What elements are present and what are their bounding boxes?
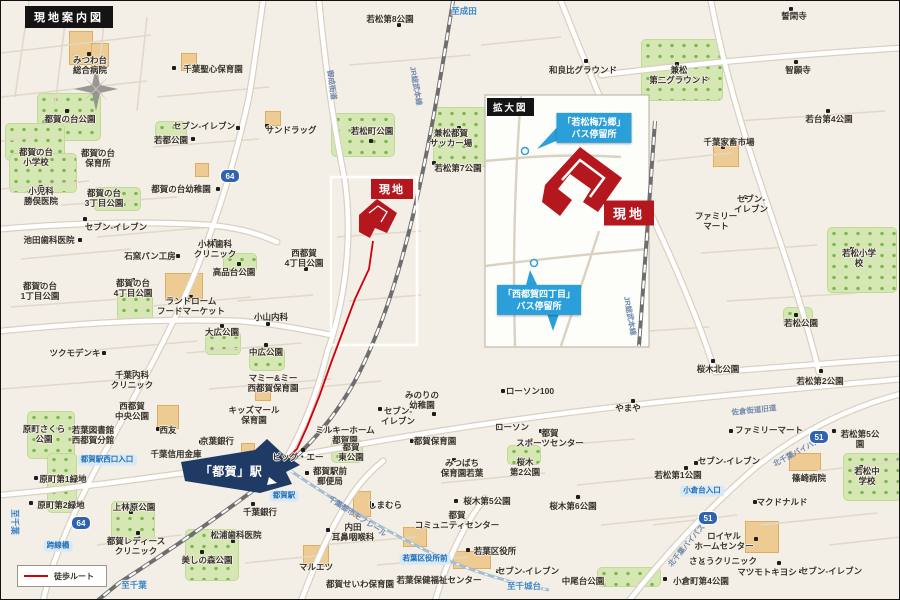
map-label: 都賀駅西口入口 (78, 455, 137, 466)
map-label: 若台第4公園 (805, 114, 852, 124)
map-label: 都賀の台 4丁目公園 (114, 278, 153, 298)
map-label: セブン-イレブン (173, 121, 235, 131)
poi-dot (794, 313, 798, 317)
route-shield: 64 (71, 516, 91, 530)
map-label: 千葉銀行 (243, 507, 277, 517)
map-label: 都賀 スポーツセンター (516, 428, 584, 448)
map-label: 高品台公園 (213, 267, 256, 277)
map-label: 若松第1公園 (654, 470, 701, 480)
map-label: セブン-イレブン (85, 222, 147, 232)
poi-dot (826, 109, 830, 113)
map-label: 小林歯科 クリニック (194, 239, 237, 259)
poi-dot (83, 217, 87, 221)
map-label: みつわ台 総合病院 (73, 55, 107, 75)
map-label: 至千葉 (121, 580, 147, 590)
map-label: 若松第7公園 (434, 163, 481, 173)
map-label: ローソン100 (506, 386, 554, 396)
map-label: マルエツ (299, 562, 333, 572)
poi-dot (711, 359, 715, 363)
map-label: 西都賀 4丁目公園 (285, 248, 324, 268)
poi-dot (754, 537, 758, 541)
poi-dot (266, 322, 270, 326)
poi-dot (236, 126, 240, 130)
map-label: 小倉台入口 (680, 486, 724, 497)
map-label: 桜木第5公園 (463, 496, 510, 506)
poi-dot (777, 561, 781, 565)
map-label: 西友 (159, 425, 176, 435)
map-label: ランドローム フードマーケット (157, 296, 225, 316)
poi-dot (136, 531, 140, 535)
map-label: 松浦歯科医院 (210, 530, 261, 540)
map-label: 桜木北公園 (697, 364, 740, 374)
map-label: セブン- イレブン (734, 194, 768, 214)
map-label: 都賀の台 3丁目公園 (85, 188, 124, 208)
map-label: セブン- イレブン (381, 406, 415, 426)
poi-dot (65, 109, 69, 113)
map-label: マツモトキヨシ (737, 567, 797, 577)
poi-dot (326, 528, 330, 532)
walk-route-line-sample (24, 575, 48, 577)
walk-route-label: 徒歩ルート (54, 571, 94, 582)
map-label: 都賀の台公園 (44, 114, 95, 124)
map-label: 都賀 東公園 (338, 442, 364, 462)
map-label: ファミリーマート (735, 425, 803, 435)
inset-title-badge: 拡大図 (487, 98, 534, 116)
map-label: 千葉内科 クリニック (111, 370, 154, 390)
poi-dot (200, 550, 204, 554)
map-label: 若松第5公園 (841, 429, 880, 449)
map-label: 美しの森公園 (181, 555, 232, 565)
bus-stop-callout: 「西都賀四丁目」 バス停留所 (497, 285, 581, 315)
site-label-main: 現地 (371, 179, 413, 199)
map-label: さとうクリニック (689, 556, 757, 566)
map-label: キッズマール 保育園 (228, 405, 279, 425)
map-label: 若都公園 (154, 135, 188, 145)
route-shield: 51 (698, 511, 718, 525)
map-label: 都賀の台 小学校 (19, 147, 53, 167)
map-label: 千葉聖心保育園 (183, 64, 243, 74)
poi-dot (454, 499, 458, 503)
poi-dot (305, 471, 309, 475)
map-label: 若松中学校 (851, 466, 883, 486)
poi-dot (584, 59, 588, 63)
map-label: 智願寺 (785, 65, 811, 75)
map-label: 佐倉街道旧道 (731, 404, 777, 417)
map-label: 御成街道 (325, 70, 338, 101)
map-label: 原町さくら 公園 (23, 424, 66, 444)
map-label: しまむら (368, 500, 402, 510)
map-label: 跨線橋 (44, 541, 73, 552)
map-label: 若松小学校 (839, 248, 879, 268)
route-shield: 64 (220, 169, 240, 183)
map-label: 兼松 第二グラウンド (649, 65, 709, 85)
tsuga-station-label: 「都賀」駅 (200, 463, 263, 480)
map-label: 中尾台公園 (562, 576, 605, 586)
map-label: 至成田 (451, 6, 477, 16)
map-label: ロイヤル ホームセンター (694, 531, 753, 551)
map-label: 若葉保健福祉センター (396, 575, 481, 585)
map-label: セブン-イレブン (800, 566, 862, 576)
map-label: セブン-イレブン (497, 566, 559, 576)
map-label: 都賀せいわ保育園 (326, 579, 394, 589)
map-label: 中広公園 (249, 347, 283, 357)
map-label: 桜木第6公園 (549, 501, 596, 511)
site-label-inset: 現地 (604, 201, 654, 226)
route-shield: 51 (809, 430, 829, 444)
poi-dot (251, 502, 255, 506)
poi-dot (729, 429, 733, 433)
poi-dot (819, 369, 823, 373)
poi-dot (794, 60, 798, 64)
map-label: 桜木 第2公園 (510, 457, 540, 477)
poi-dot (34, 476, 38, 480)
map-label: 篠崎病院 (792, 473, 826, 483)
poi-dot (191, 137, 195, 141)
map-title-badge: 現地案内図 (25, 6, 113, 28)
poi-dot (176, 254, 180, 258)
map-label: 都賀保育園 (414, 436, 457, 446)
poi-dot (663, 577, 667, 581)
map-label: 上林原公園 (113, 502, 156, 512)
map-label: 小倉町第4公園 (673, 576, 729, 586)
map-label: 都賀レディース クリニック (107, 536, 165, 556)
map-label: 都賀駅前 郵便局 (313, 466, 347, 486)
map-label: 都賀の台 保育所 (81, 148, 115, 168)
poi-dot (172, 66, 176, 70)
poi-dot (832, 429, 836, 433)
poi-dot (501, 389, 505, 393)
poi-dot (576, 495, 580, 499)
map-label: マクドナルド (756, 497, 807, 507)
poi-dot (466, 548, 470, 552)
map-label: ファミリー マート (695, 211, 738, 231)
map-label: みつばち 保育園若葉 (441, 458, 484, 478)
legend-box: 徒歩ルート (17, 565, 107, 587)
map-label: 若松町公園 (351, 126, 394, 136)
map-label: 至千葉 (10, 509, 20, 535)
area-guide-map: 現地案内図 拡大図 現地 現地 「都賀」駅 徒歩ルート みつわ台 総合病院千葉聖… (0, 0, 900, 600)
map-label: 都賀の台幼稚園 (151, 184, 211, 194)
map-label: 西都賀 中央公園 (115, 401, 149, 421)
map-label: 和良比グラウンド (549, 65, 617, 75)
map-label: 千葉信用金庫 (150, 449, 201, 459)
map-label: 原町第2緑地 (37, 500, 84, 510)
map-label: 池田歯科医院 (23, 235, 74, 245)
map-label: 都賀駅 (270, 491, 299, 502)
map-label: 若松第2公園 (796, 376, 843, 386)
map-label: 京葉銀行 (200, 436, 234, 446)
poi-dot (369, 139, 373, 143)
map-label: 至千城台 (507, 581, 541, 591)
map-label: ビッグ・エー (272, 452, 323, 462)
map-label: 若葉区役所前 (400, 554, 451, 565)
map-label: JR総武本線 (407, 66, 423, 107)
map-label: 大広公園 (205, 327, 239, 337)
map-label: 兼松都賀 サッカー場 (430, 128, 473, 148)
map-label: 若葉図書館 西都賀分館 (72, 425, 115, 445)
poi-dot (78, 238, 82, 242)
map-label: セブン-イレブン (698, 456, 760, 466)
map-label: やまや (615, 403, 641, 413)
map-label: 石窯パン工房 (124, 251, 175, 261)
poi-dot (432, 412, 436, 416)
map-label: 若松公園 (784, 318, 818, 328)
map-label: 都賀 コミュニティセンター (415, 510, 500, 530)
map-label: 千葉家畜市場 (703, 137, 754, 147)
map-label: 誓閑寺 (781, 11, 807, 21)
poi-dot (102, 351, 106, 355)
poi-dot (216, 187, 220, 191)
map-label: ツクモデンキ (49, 348, 100, 358)
poi-dot (237, 262, 241, 266)
bus-stop-callout: 「若松梅乃郷」 バス停留所 (556, 113, 631, 143)
map-labels-layer: 現地案内図 拡大図 現地 現地 「都賀」駅 徒歩ルート みつわ台 総合病院千葉聖… (1, 1, 899, 599)
map-label: 都賀の台 1丁目公園 (21, 281, 60, 301)
map-label: 若松第8公園 (366, 14, 413, 24)
poi-dot (29, 501, 33, 505)
map-label: マミー&ミー 西都賀保育園 (247, 373, 298, 393)
map-label: 原町第1緑地 (39, 474, 86, 484)
map-label: サンドラッグ (265, 125, 316, 135)
map-label: 小児科 勝俣医院 (24, 186, 58, 206)
map-label: 若葉区役所 (474, 546, 517, 556)
map-label: JR総武本線 (621, 296, 637, 337)
map-label: 小山内科 (254, 312, 288, 322)
